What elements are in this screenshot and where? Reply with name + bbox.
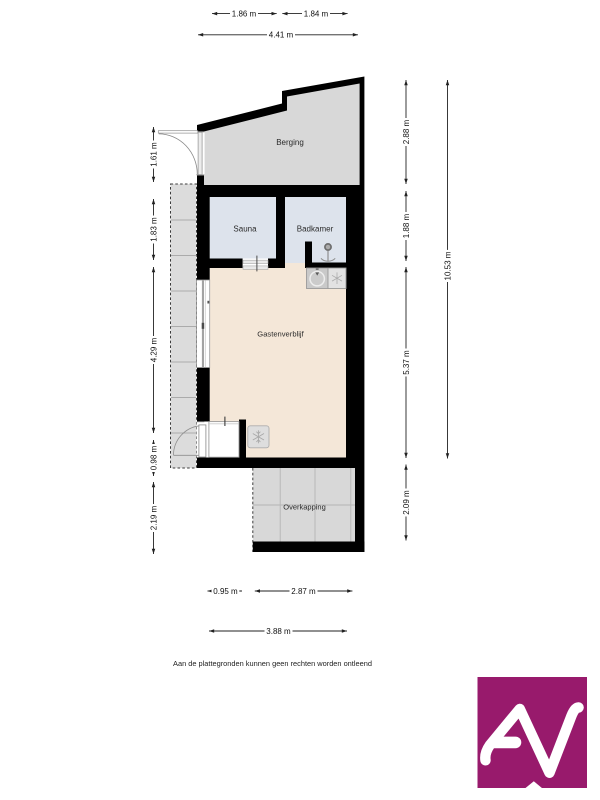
svg-text:Sauna: Sauna bbox=[233, 225, 257, 234]
svg-text:0.98 m: 0.98 m bbox=[149, 445, 158, 470]
svg-text:1.83 m: 1.83 m bbox=[149, 217, 158, 242]
svg-text:2.09 m: 2.09 m bbox=[402, 490, 411, 515]
svg-text:2.87 m: 2.87 m bbox=[291, 587, 316, 596]
svg-text:Aan de plattegronden kunnen ge: Aan de plattegronden kunnen geen rechten… bbox=[173, 659, 372, 668]
svg-text:1.84 m: 1.84 m bbox=[304, 10, 329, 19]
svg-text:2.88 m: 2.88 m bbox=[402, 119, 411, 144]
svg-text:2.19 m: 2.19 m bbox=[149, 505, 158, 530]
svg-text:10.53 m: 10.53 m bbox=[443, 251, 452, 280]
svg-text:Overkapping: Overkapping bbox=[283, 502, 326, 511]
svg-text:Badkamer: Badkamer bbox=[297, 225, 334, 234]
svg-text:1.86 m: 1.86 m bbox=[232, 10, 257, 19]
svg-text:4.29 m: 4.29 m bbox=[149, 337, 158, 362]
svg-text:1.61 m: 1.61 m bbox=[149, 142, 158, 167]
svg-text:1.88 m: 1.88 m bbox=[402, 213, 411, 238]
svg-text:4.41 m: 4.41 m bbox=[269, 31, 294, 40]
svg-text:Gastenverblijf: Gastenverblijf bbox=[257, 330, 304, 339]
svg-text:Berging: Berging bbox=[276, 138, 304, 147]
svg-text:5.37 m: 5.37 m bbox=[402, 350, 411, 375]
svg-text:3.88 m: 3.88 m bbox=[266, 627, 291, 636]
svg-text:0.95 m: 0.95 m bbox=[213, 587, 238, 596]
